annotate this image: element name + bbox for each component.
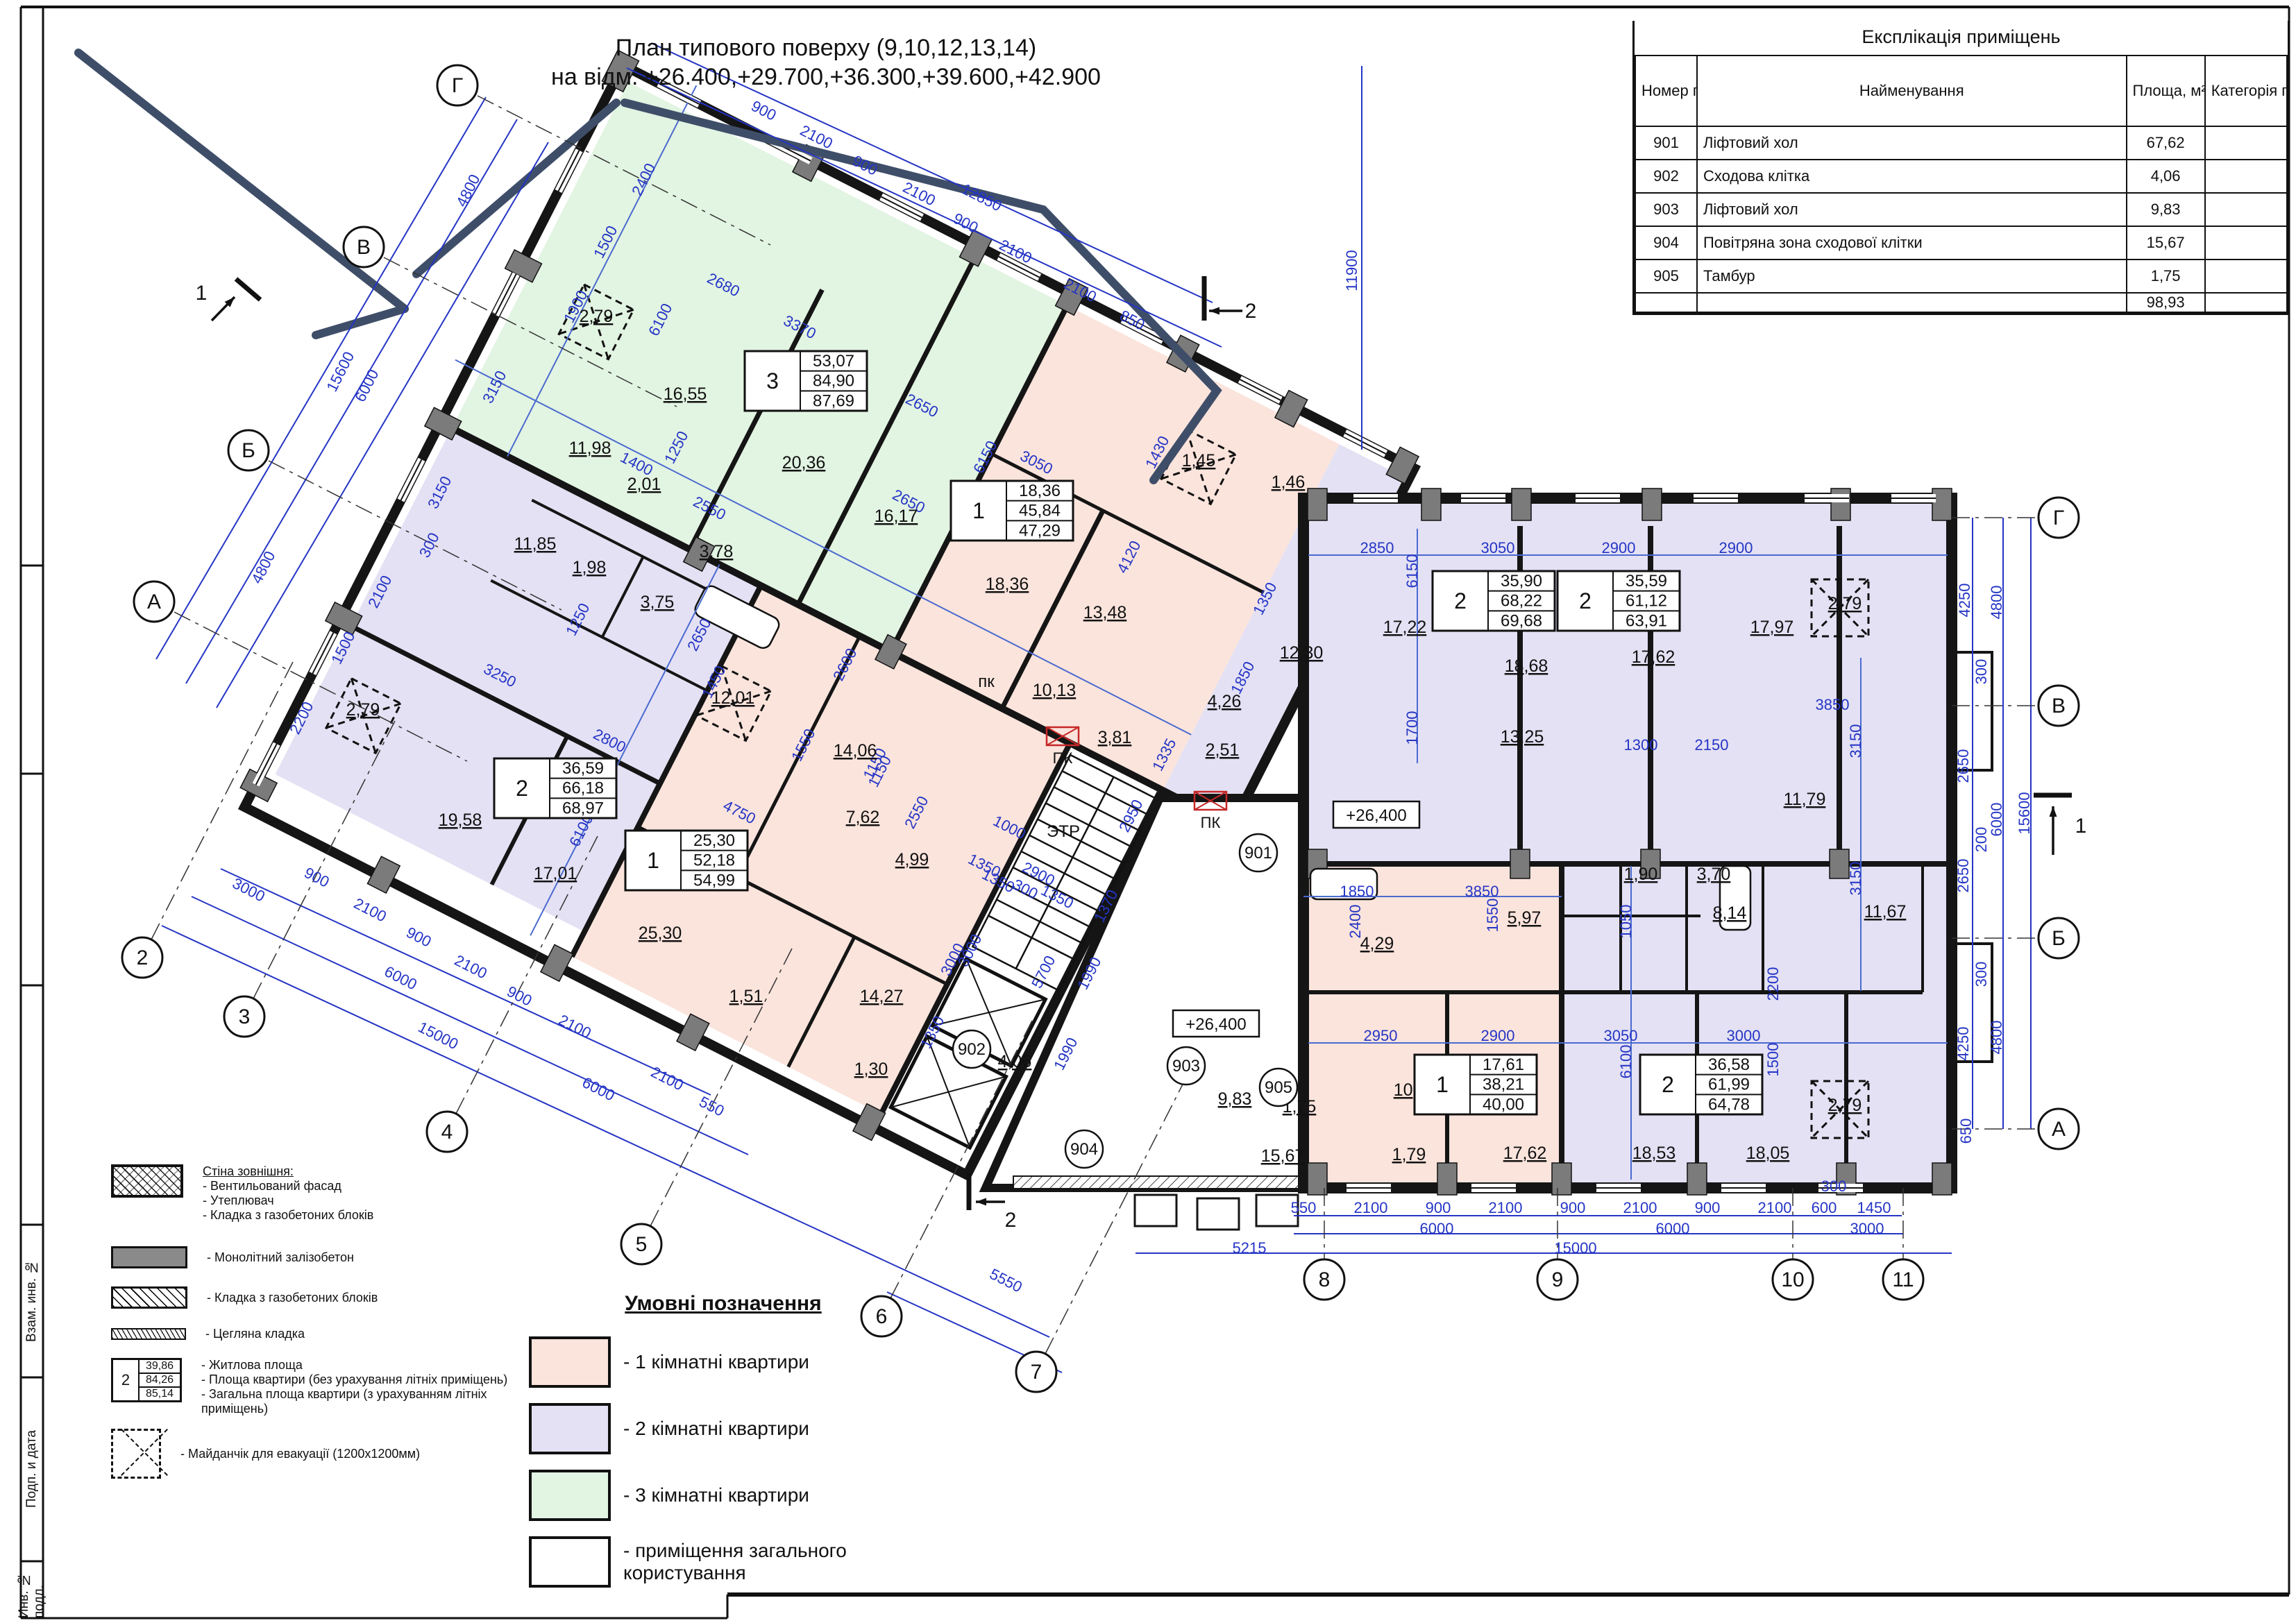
room-area-label: 11,98 bbox=[569, 439, 611, 458]
room-area-label: 11,85 bbox=[514, 534, 557, 554]
axis-bubble-label: Б bbox=[2052, 927, 2066, 950]
axis-bubble-label: В bbox=[2052, 695, 2066, 717]
dimension-label: 6100 bbox=[1617, 1045, 1635, 1079]
pk-unit-label: ПК bbox=[1201, 814, 1221, 831]
room-area-label: 1,98 bbox=[573, 558, 607, 577]
room-area-label: 20,36 bbox=[782, 453, 826, 473]
empty-cell bbox=[2205, 293, 2287, 312]
axis-bubble-label: 8 bbox=[1319, 1268, 1331, 1291]
legend-swatch bbox=[529, 1336, 611, 1388]
dimension-label: 2900 bbox=[1481, 1027, 1515, 1044]
axis-bubble-label: 3 bbox=[239, 1005, 251, 1028]
room-area-label: 3,70 bbox=[1697, 865, 1731, 884]
legend-item: - 1 кімнатні квартири bbox=[529, 1336, 918, 1388]
dimension-label: 4250 bbox=[1956, 584, 1973, 618]
room-area-label: 2,79 bbox=[1828, 1096, 1862, 1115]
explication-table: Експлікація приміщень Номер прим. Наймен… bbox=[1632, 21, 2290, 315]
axis-bubble-label: А bbox=[2052, 1118, 2066, 1141]
dimension-label: 300 bbox=[1821, 1178, 1847, 1195]
dimension-label: 3050 bbox=[1604, 1027, 1638, 1044]
total-area: 98,93 bbox=[2127, 293, 2205, 312]
room-area-label: 17,97 bbox=[1750, 618, 1794, 637]
section-mark-label: 1 bbox=[2075, 815, 2087, 838]
dimension-label: 11900 bbox=[1343, 250, 1360, 291]
room-area-label: 11,67 bbox=[1864, 902, 1907, 921]
room-area-label: 10,13 bbox=[1033, 681, 1077, 700]
dimension-label: 1850 bbox=[1340, 883, 1374, 900]
axis-bubble-label: 4 bbox=[441, 1121, 453, 1144]
stamp-podp: Подп. и дата bbox=[21, 1377, 43, 1561]
room-area-label: 1,51 bbox=[729, 987, 763, 1006]
apartment-areas-symbol: 2 39,86 84,26 85,14 bbox=[111, 1358, 182, 1402]
dimension-label: 550 bbox=[1291, 1199, 1317, 1216]
dimension-label: 900 bbox=[1426, 1199, 1451, 1216]
apartment-area-value: 36,58 bbox=[1708, 1055, 1750, 1074]
stamp-vzam: Взам. инв. № bbox=[21, 1225, 43, 1377]
apartment-area-value: 18,36 bbox=[1019, 482, 1061, 500]
axis-bubble-label: Г bbox=[452, 74, 463, 97]
col-area: Площа, м² bbox=[2127, 56, 2205, 126]
room-area: 15,67 bbox=[2127, 226, 2205, 260]
room-name: Ліфтовий хол bbox=[1697, 126, 2127, 160]
apartment-rooms-count: 1 bbox=[972, 498, 985, 523]
apartment-rooms-count: 2 bbox=[1662, 1072, 1674, 1097]
room-area: 1,75 bbox=[2127, 260, 2205, 293]
col-category: Категорія прим. bbox=[2205, 56, 2287, 126]
explication-rows: 901Ліфтовий хол67,62902Сходова клітка4,0… bbox=[1635, 126, 2287, 312]
apartment-area-value: 61,12 bbox=[1626, 592, 1667, 611]
dimension-label: 2650 bbox=[1955, 859, 1972, 893]
wall-legend-title: Стіна зовнішня: bbox=[203, 1164, 373, 1179]
room-area-label: 3,81 bbox=[1098, 728, 1132, 747]
dimension-label: 1450 bbox=[1857, 1199, 1891, 1216]
brick-masonry-label: - Цегляна кладка bbox=[205, 1327, 305, 1341]
room-number-label: 901 bbox=[1244, 844, 1272, 863]
room-name: Сходова клітка bbox=[1697, 160, 2127, 193]
room-area-label: 11,79 bbox=[1784, 790, 1826, 809]
apartment-area-value: 40,00 bbox=[1483, 1095, 1524, 1114]
dimension-label: 3150 bbox=[1847, 724, 1864, 758]
dimension-label: 900 bbox=[1560, 1199, 1586, 1216]
col-name: Найменування bbox=[1697, 56, 2127, 126]
porch-hatch bbox=[1013, 1176, 1303, 1189]
room-name-label: ЭТР bbox=[1047, 822, 1080, 841]
apartment-rooms-count: 2 bbox=[516, 776, 528, 801]
dimension-label: 6000 bbox=[1988, 803, 2005, 837]
axis-bubble-label: А bbox=[147, 590, 161, 613]
room-area-label: 14,27 bbox=[860, 987, 904, 1006]
legend: Умовні позначення - 1 кімнатні квартири-… bbox=[529, 1292, 918, 1603]
dimension-label: 4800 bbox=[1988, 1021, 2005, 1055]
apartment-area-value: 54,99 bbox=[693, 871, 735, 890]
room-name-label: пк bbox=[978, 672, 995, 691]
empty-cell bbox=[1635, 293, 1697, 312]
apartment-area-value: 35,59 bbox=[1626, 572, 1667, 590]
explication-row: 904Повітряна зона сходової клітки15,67 bbox=[1635, 226, 2287, 260]
room-name: Повітряна зона сходової клітки bbox=[1697, 226, 2127, 260]
room-area-label: 19,58 bbox=[439, 810, 482, 830]
apartment-area-value: 36,59 bbox=[562, 759, 604, 778]
room-area: 9,83 bbox=[2127, 193, 2205, 226]
axis-bubble-label: 2 bbox=[137, 946, 149, 969]
dimension-label: 2900 bbox=[1719, 539, 1753, 556]
section-mark-label: 2 bbox=[1245, 300, 1257, 323]
apartment-area-value: 63,91 bbox=[1626, 611, 1667, 630]
explication-row: 905Тамбур1,75 bbox=[1635, 260, 2287, 293]
explication-header: Номер прим. Найменування Площа, м² Катег… bbox=[1635, 56, 2287, 126]
dimension-label: 600 bbox=[1812, 1199, 1837, 1216]
dimension-label: 15600 bbox=[2016, 792, 2033, 834]
room-area-label: 1,45 bbox=[1182, 451, 1216, 470]
dimension-label: 6150 bbox=[1403, 554, 1421, 588]
explication-title: Експлікація приміщень bbox=[1635, 21, 2288, 55]
room-area-label: 15,67 bbox=[1261, 1146, 1305, 1166]
room-area-label: 4,06 bbox=[998, 1052, 1032, 1071]
dimension-label: 2100 bbox=[1623, 1199, 1657, 1216]
room-category bbox=[2205, 260, 2287, 293]
dimension-label: 2200 bbox=[1764, 967, 1782, 1001]
apartment-area-value: 47,29 bbox=[1019, 521, 1061, 540]
room-number-label: 903 bbox=[1172, 1057, 1200, 1076]
dimension-label: 3050 bbox=[1481, 539, 1515, 556]
empty-cell bbox=[1697, 293, 2127, 312]
room-area-label: 12,30 bbox=[1280, 643, 1324, 663]
dimension-label: 2150 bbox=[1695, 736, 1729, 754]
wall-legend: Стіна зовнішня: - Вентильований фасад - … bbox=[111, 1164, 527, 1488]
apartment-area-value: 87,69 bbox=[813, 391, 854, 410]
room-area-label: 17,62 bbox=[1632, 647, 1675, 667]
apartment-area-value: 53,07 bbox=[813, 352, 854, 371]
room-area-label: 3,78 bbox=[700, 542, 734, 561]
room-area-label: 4,99 bbox=[895, 850, 929, 869]
room-category bbox=[2205, 193, 2287, 226]
dimension-label: 300 bbox=[1973, 962, 1990, 987]
room-number: 905 bbox=[1635, 260, 1697, 293]
apartment-rooms-count: 1 bbox=[647, 848, 659, 873]
dimension-label: 1550 bbox=[1484, 899, 1501, 933]
room-area-label: 17,01 bbox=[534, 864, 577, 883]
room-category bbox=[2205, 126, 2287, 160]
room-area-label: 17,62 bbox=[1503, 1144, 1547, 1163]
room-area: 67,62 bbox=[2127, 126, 2205, 160]
dimension-label: 15000 bbox=[1554, 1239, 1596, 1257]
room-area-label: 2,79 bbox=[346, 700, 380, 720]
room-area-label: 17,22 bbox=[1383, 618, 1427, 637]
monolith-label: - Монолітний залізобетон bbox=[207, 1250, 354, 1265]
room-area-label: 16,17 bbox=[875, 507, 918, 526]
level-mark-value: +26,400 bbox=[1346, 806, 1406, 825]
legend-item: - приміщення загального користування bbox=[529, 1536, 918, 1588]
apartment-area-value: 69,68 bbox=[1501, 611, 1542, 630]
apartment-rooms-count: 1 bbox=[1436, 1072, 1449, 1097]
dimension-label: 2650 bbox=[1955, 749, 1972, 783]
room-area-label: 8,14 bbox=[1713, 903, 1747, 923]
room-number-label: 904 bbox=[1070, 1140, 1098, 1159]
room-area-label: 18,53 bbox=[1632, 1144, 1676, 1163]
explication-row: 903Ліфтовий хол9,83 bbox=[1635, 193, 2287, 226]
room-area-label: 18,68 bbox=[1505, 656, 1548, 676]
dimension-label: 1500 bbox=[1764, 1043, 1782, 1077]
legend-label: - 2 кімнатні квартири bbox=[623, 1418, 809, 1440]
room-area-label: 2,01 bbox=[627, 475, 661, 494]
legend-label: - приміщення загального користування bbox=[623, 1540, 918, 1584]
room-area-label: 2,79 bbox=[1828, 594, 1862, 613]
pk-unit-label: ПК bbox=[1053, 749, 1073, 767]
apartment-area-value: 45,84 bbox=[1019, 502, 1061, 520]
apartment-area-value: 52,18 bbox=[693, 851, 735, 870]
room-area-label: 18,05 bbox=[1746, 1144, 1790, 1163]
room-number: 903 bbox=[1635, 193, 1697, 226]
title-line-2: на відм. +26.400,+29.700,+36.300,+39.600… bbox=[486, 62, 1166, 92]
porch-piers bbox=[1135, 1195, 1298, 1230]
stamp-inv: Инв. № подл. bbox=[21, 1561, 43, 1618]
apartment-area-value: 17,61 bbox=[1483, 1055, 1524, 1074]
room-area-label: 4,26 bbox=[1208, 692, 1242, 711]
room-area-label: 1,30 bbox=[854, 1060, 888, 1079]
dimension-label: 5215 bbox=[1233, 1239, 1267, 1257]
dimension-label: 6000 bbox=[1656, 1220, 1690, 1237]
legend-swatch bbox=[529, 1536, 611, 1588]
room-name: Ліфтовий хол bbox=[1697, 193, 2127, 226]
apartment-rooms-count: 2 bbox=[1579, 588, 1592, 613]
room-name: Тамбур bbox=[1697, 260, 2127, 293]
apartment-area-value: 66,18 bbox=[562, 779, 604, 798]
room-area-label: 1,79 bbox=[1392, 1145, 1426, 1164]
apartment-area-value: 38,21 bbox=[1483, 1076, 1524, 1094]
col-number: Номер прим. bbox=[1635, 56, 1697, 126]
axis-bubble-label: 7 bbox=[1031, 1361, 1043, 1384]
legend-item: - 3 кімнатні квартири bbox=[529, 1470, 918, 1521]
room-area-label: 13,48 bbox=[1083, 603, 1127, 622]
drawing-title: План типового поверху (9,10,12,13,14) на… bbox=[486, 33, 1166, 92]
apartment-rooms-count: 2 bbox=[1454, 588, 1467, 613]
legend-swatch bbox=[529, 1470, 611, 1521]
legend-item: - 2 кімнатні квартири bbox=[529, 1403, 918, 1454]
room-number-label: 905 bbox=[1265, 1078, 1292, 1097]
section-mark-label: 2 bbox=[1005, 1209, 1017, 1232]
legend-label: - 3 кімнатні квартири bbox=[623, 1484, 809, 1506]
dimension-label: 1700 bbox=[1403, 711, 1421, 745]
dimension-label: 3150 bbox=[1847, 862, 1864, 896]
apartment-area-value: 64,78 bbox=[1708, 1095, 1750, 1114]
dimension-label: 2900 bbox=[1602, 539, 1636, 556]
axis-bubble-label: Б bbox=[242, 439, 255, 462]
legend-label: - 1 кімнатні квартири bbox=[623, 1351, 809, 1373]
dimension-label: 900 bbox=[1695, 1199, 1721, 1216]
apartment-area-value: 68,97 bbox=[562, 799, 604, 817]
dimension-label: 3000 bbox=[1850, 1220, 1884, 1237]
legend-title: Умовні позначення bbox=[529, 1292, 918, 1316]
external-wall-swatch bbox=[111, 1164, 183, 1198]
explication-row: 901Ліфтовий хол67,62 bbox=[1635, 126, 2287, 160]
apartment-area-value: 84,90 bbox=[813, 372, 854, 391]
room-area: 4,06 bbox=[2127, 160, 2205, 193]
dimension-label: 4250 bbox=[1955, 1027, 1972, 1061]
section-mark-label: 1 bbox=[196, 282, 208, 305]
dimension-label: 1300 bbox=[1624, 736, 1658, 754]
block-masonry-label: - Кладка з газобетоних блоків bbox=[207, 1291, 378, 1305]
dimension-label: 650 bbox=[1957, 1119, 1975, 1144]
axis-bubble-label: 11 bbox=[1892, 1268, 1914, 1291]
room-area-label: 1,46 bbox=[1272, 473, 1306, 492]
room-area-label: 13,25 bbox=[1501, 727, 1544, 747]
dimension-label: 4800 bbox=[1988, 586, 2005, 620]
room-category bbox=[2205, 226, 2287, 260]
evacuation-pad-symbol bbox=[111, 1429, 161, 1479]
brick-masonry-swatch bbox=[111, 1328, 186, 1340]
dimension-label: 3000 bbox=[1727, 1027, 1761, 1044]
explication-row: 902Сходова клітка4,06 bbox=[1635, 160, 2287, 193]
block-masonry-swatch bbox=[111, 1286, 187, 1309]
apartment-area-value: 25,30 bbox=[693, 831, 735, 850]
apartment-area-value: 35,90 bbox=[1501, 572, 1542, 590]
room-area-label: 2,51 bbox=[1206, 740, 1240, 760]
room-area-label: 16,55 bbox=[664, 384, 707, 404]
legend-swatch bbox=[529, 1403, 611, 1454]
axis-bubble-label: Г bbox=[2053, 507, 2064, 529]
dimension-label: 6000 bbox=[1420, 1220, 1454, 1237]
axis-bubble-label: 9 bbox=[1552, 1268, 1564, 1291]
dimension-label: 1050 bbox=[1617, 905, 1635, 939]
apartment-rooms-count: 3 bbox=[766, 368, 779, 393]
room-number-label: 902 bbox=[958, 1040, 986, 1059]
axis-bubble-label: 5 bbox=[636, 1233, 648, 1256]
dimension-label: 300 bbox=[1973, 659, 1990, 685]
dimension-label: 3850 bbox=[1816, 696, 1850, 713]
room-area-label: 12,01 bbox=[711, 688, 755, 708]
room-area-label: 1,90 bbox=[1624, 865, 1658, 884]
dimension-label: 2100 bbox=[1489, 1199, 1523, 1216]
evacuation-pad-label: - Майданчік для евакуації (1200х1200мм) bbox=[180, 1447, 420, 1461]
room-area-label: 2,79 bbox=[580, 307, 614, 326]
apartment-area-value: 61,99 bbox=[1708, 1076, 1750, 1094]
level-mark-value: +26,400 bbox=[1185, 1015, 1246, 1034]
monolith-swatch bbox=[111, 1246, 187, 1268]
dimension-label: 2100 bbox=[1758, 1199, 1792, 1216]
axis-bubble-label: 10 bbox=[1781, 1268, 1804, 1291]
dimension-label: 2100 bbox=[1354, 1199, 1388, 1216]
dimension-label: 2950 bbox=[1364, 1027, 1398, 1044]
room-area-label: 18,36 bbox=[986, 575, 1029, 594]
drawing-sheet: 9002100900210012850900210021008502680337… bbox=[0, 0, 2296, 1623]
room-area-label: 3,75 bbox=[641, 593, 675, 612]
room-area-label: 14,06 bbox=[834, 741, 877, 760]
dimension-label: 3850 bbox=[1465, 883, 1499, 900]
room-area-label: 7,62 bbox=[846, 808, 880, 827]
room-number: 904 bbox=[1635, 226, 1697, 260]
room-area-label: 9,83 bbox=[1218, 1089, 1252, 1109]
room-number: 901 bbox=[1635, 126, 1697, 160]
title-line-1: План типового поверху (9,10,12,13,14) bbox=[486, 33, 1166, 62]
apartment-area-value: 68,22 bbox=[1501, 592, 1542, 611]
explication-total-row: 98,93 bbox=[1635, 293, 2287, 312]
room-area-label: 4,29 bbox=[1360, 934, 1394, 953]
dimension-label: 2850 bbox=[1360, 539, 1394, 556]
room-number: 902 bbox=[1635, 160, 1697, 193]
axis-bubble-label: В bbox=[357, 236, 371, 259]
room-area-label: 25,30 bbox=[639, 924, 682, 943]
room-category bbox=[2205, 160, 2287, 193]
room-area-label: 5,97 bbox=[1508, 908, 1542, 928]
